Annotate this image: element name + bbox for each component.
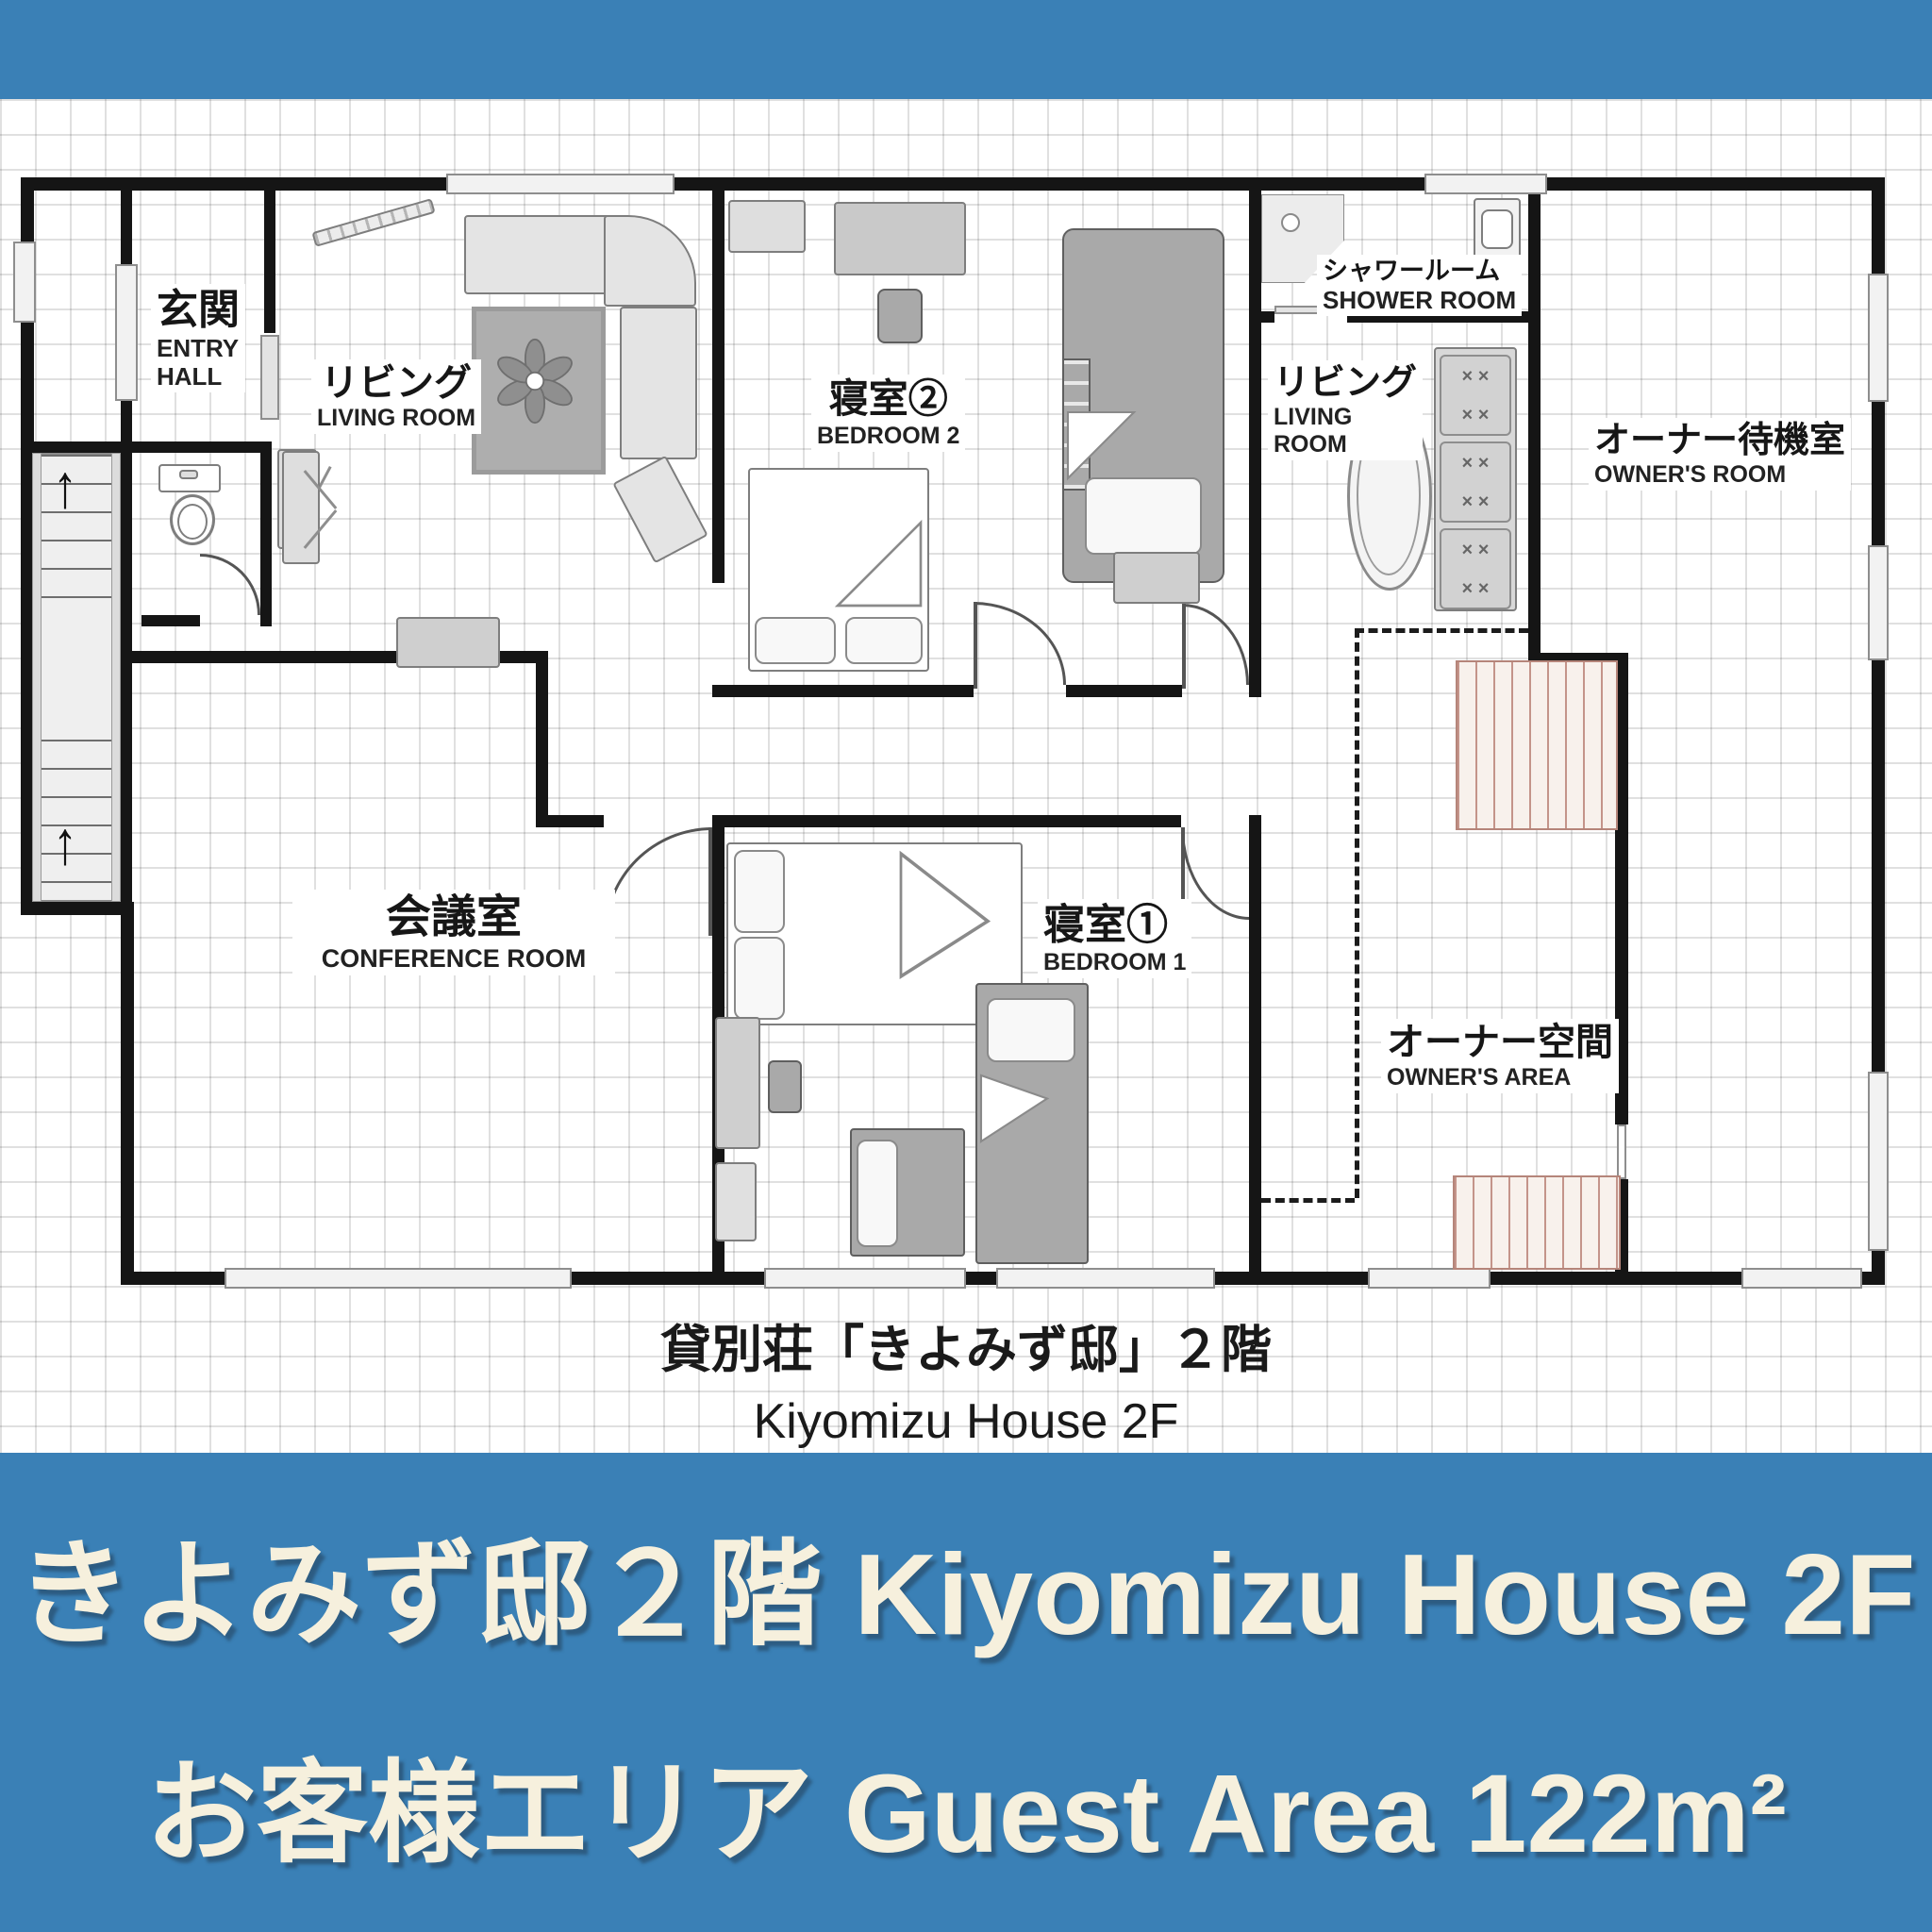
shower-label-en: SHOWER ROOM <box>1323 286 1516 314</box>
entry-label-en2: HALL <box>157 362 240 391</box>
nightstand <box>1113 552 1200 604</box>
up-arrow-icon: ↑ <box>53 813 77 874</box>
owner-staircase-upper <box>1456 660 1618 830</box>
boundary-dashed-line <box>1355 628 1528 633</box>
entry-label-en1: ENTRY <box>157 334 240 362</box>
conference-label-ja: 会議室 <box>298 891 609 944</box>
window <box>1424 174 1547 194</box>
wall <box>712 685 974 697</box>
sofa-cushion: × × × × <box>1440 355 1511 436</box>
pillow <box>857 1140 898 1247</box>
wall <box>1528 187 1541 664</box>
chair <box>768 1060 802 1113</box>
door-arc <box>1182 604 1249 685</box>
sofa-end-section <box>612 456 708 564</box>
room-label-bedroom2: 寝室② BEDROOM 2 <box>811 375 965 452</box>
living-left-label-en: LIVING ROOM <box>317 405 475 432</box>
sofa-side-section <box>620 307 697 459</box>
plan-caption: 貸別荘「きよみず邸」２階 Kiyomizu House 2F <box>0 1307 1932 1450</box>
pillow <box>734 937 785 1020</box>
wall <box>260 441 272 626</box>
wall <box>121 902 134 1285</box>
wall <box>712 187 724 583</box>
wall <box>21 177 1885 191</box>
desk <box>834 202 966 275</box>
window <box>1868 274 1889 402</box>
window <box>225 1268 572 1289</box>
owners-area-label-en: OWNER'S AREA <box>1387 1064 1613 1091</box>
cushion-pattern: × × <box>1462 454 1490 473</box>
room-label-living-right: リビング LIVING ROOM <box>1268 360 1423 460</box>
living-right-label-ja: リビング <box>1274 362 1417 404</box>
sink-basin <box>1481 209 1513 249</box>
room-label-owners-room: オーナー待機室 OWNER'S ROOM <box>1589 418 1851 491</box>
window <box>13 241 36 323</box>
shower-label-ja: シャワールーム <box>1323 257 1516 286</box>
bedroom2-label-ja: 寝室② <box>817 376 959 423</box>
side-table <box>396 617 500 668</box>
window <box>1868 1072 1889 1251</box>
blanket-fold-icon <box>838 519 921 609</box>
room-label-living-left: リビング LIVING ROOM <box>311 359 481 434</box>
wall <box>1249 187 1261 697</box>
cushion-pattern: × × <box>1462 406 1490 425</box>
door-arc <box>604 827 712 936</box>
floorplan-page: { "colors": { "accent_blue": "#3a80b6", … <box>0 0 1932 1932</box>
window <box>115 264 138 401</box>
wall <box>21 902 132 915</box>
cushion-pattern: × × <box>1462 367 1490 386</box>
pillow <box>987 998 1075 1062</box>
blanket-fold-icon <box>1068 410 1134 480</box>
owners-room-label-ja: オーナー待機室 <box>1594 420 1845 461</box>
boundary-dashed-line <box>1355 628 1359 1198</box>
room-label-conference: 会議室 CONFERENCE ROOM <box>292 890 615 975</box>
room-label-owners-area: オーナー空間 OWNER'S AREA <box>1381 1019 1619 1093</box>
pillow <box>1085 477 1202 555</box>
toilet-button <box>179 470 198 479</box>
conference-label-en: CONFERENCE ROOM <box>298 944 609 974</box>
window <box>1868 545 1889 660</box>
stair-rail <box>111 453 121 902</box>
wall <box>1261 311 1274 323</box>
cushion-pattern: × × <box>1462 541 1490 559</box>
blanket-fold-icon <box>981 1071 1047 1146</box>
chair <box>877 289 923 343</box>
banner-line1: きよみず邸２階 Kiyomizu House 2F <box>16 1501 1915 1668</box>
wall <box>21 441 272 453</box>
bedroom2-label-en: BEDROOM 2 <box>817 423 959 450</box>
sofa-cushion: × × × × <box>1440 528 1511 609</box>
window <box>1741 1268 1862 1289</box>
bottom-blue-banner: きよみず邸２階 Kiyomizu House 2F お客様エリア Guest A… <box>0 1453 1932 1932</box>
door-arc <box>200 554 260 615</box>
banner-line2: お客様エリア Guest Area 122m² <box>145 1723 1787 1884</box>
cabinet <box>715 1162 757 1241</box>
shower-drain <box>1281 213 1300 232</box>
room-label-entry: 玄関 ENTRY HALL <box>151 284 245 392</box>
room-label-shower: シャワールーム SHOWER ROOM <box>1317 255 1522 316</box>
top-blue-bar <box>0 0 1932 99</box>
ski-rack <box>311 198 435 247</box>
wall <box>264 177 275 333</box>
wall <box>1066 685 1182 697</box>
entry-label-ja: 玄関 <box>157 286 240 334</box>
wall <box>536 651 548 827</box>
pillow <box>845 617 923 664</box>
wall <box>142 615 200 626</box>
window <box>1368 1268 1491 1289</box>
door-leaf <box>974 602 977 689</box>
room-label-bedroom1: 寝室① BEDROOM 1 <box>1038 899 1191 978</box>
ceiling-fan-icon <box>491 338 578 425</box>
sofa-cushion: × × × × <box>1440 441 1511 523</box>
living-right-label-en2: ROOM <box>1274 431 1417 458</box>
owners-room-label-en: OWNER'S ROOM <box>1594 461 1845 489</box>
cushion-pattern: × × <box>1462 579 1490 598</box>
living-left-label-ja: リビング <box>317 361 475 405</box>
caption-en: Kiyomizu House 2F <box>0 1393 1932 1450</box>
caption-ja: 貸別荘「きよみず邸」２階 <box>0 1307 1932 1382</box>
stair-rail <box>32 453 42 902</box>
boundary-dashed-line <box>1261 1198 1355 1203</box>
window <box>446 174 675 194</box>
floor-plan: ↑ ↑ <box>0 99 1932 1453</box>
living-right-label-en1: LIVING <box>1274 404 1417 431</box>
pillow <box>734 850 785 933</box>
owners-area-label-ja: オーナー空間 <box>1387 1021 1613 1064</box>
wall <box>1249 815 1261 1285</box>
owner-staircase-lower <box>1453 1175 1621 1270</box>
bedroom1-label-en: BEDROOM 1 <box>1043 949 1186 976</box>
tv-stand <box>282 451 320 564</box>
owner-door <box>1617 1124 1626 1179</box>
window <box>764 1268 966 1289</box>
door-leaf <box>1182 604 1186 689</box>
window <box>996 1268 1215 1289</box>
toilet-bowl-inner <box>177 504 208 540</box>
blanket-fold-icon <box>901 854 988 976</box>
door-arc <box>974 602 1066 685</box>
cushion-pattern: × × <box>1462 492 1490 511</box>
desk <box>715 1017 760 1149</box>
bedroom1-label-ja: 寝室① <box>1043 901 1186 949</box>
pillow <box>755 617 836 664</box>
up-arrow-icon: ↑ <box>53 457 77 518</box>
wall <box>724 815 1181 827</box>
tv-cabinet <box>728 200 806 253</box>
entry-door <box>260 335 279 420</box>
sofa-corner-section <box>604 215 696 307</box>
wall <box>536 815 604 827</box>
